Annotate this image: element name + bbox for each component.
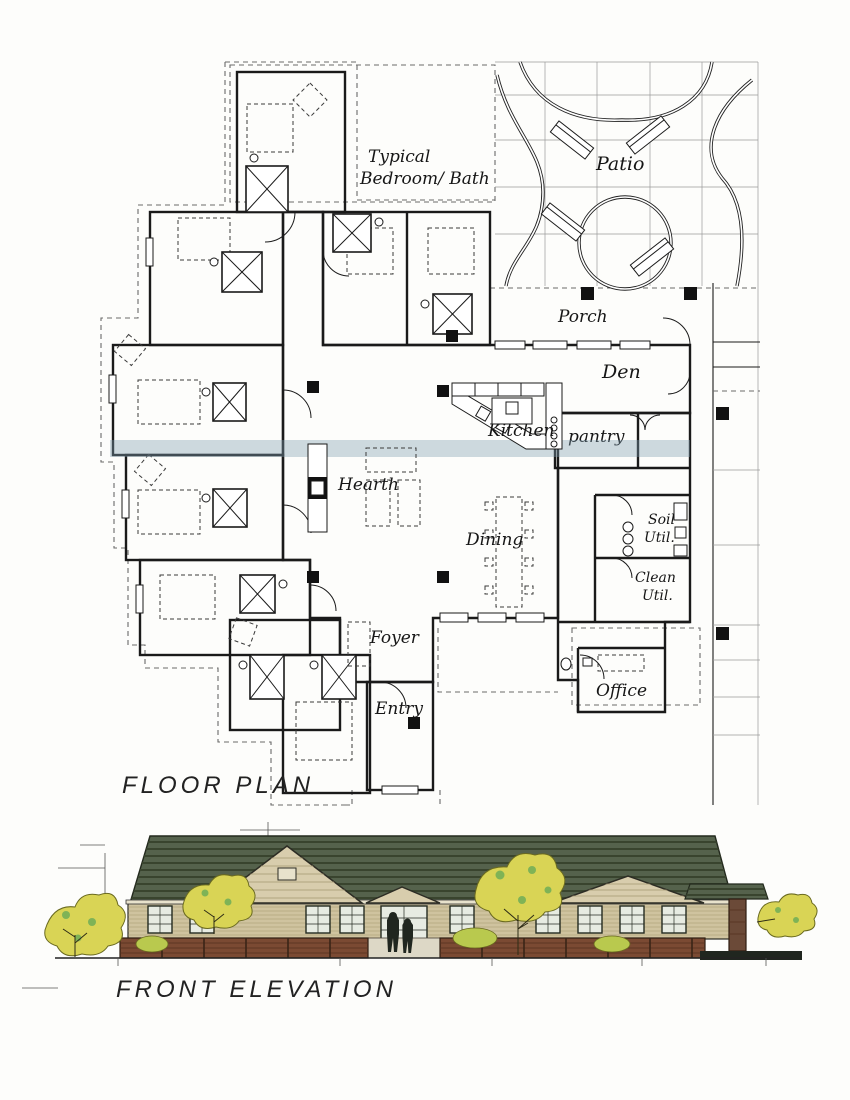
elevation-drawing: FRONT ELEVATION [22,822,817,1003]
room-label-den: Den [601,361,641,383]
bedroom-upper-left [150,212,283,345]
brick-pier [729,899,746,951]
tree-left [45,893,126,957]
kitchen-area: Kitchen [452,383,562,449]
service-wing: Soil Util. Clean Util. Office pantry [555,372,690,712]
room-label-entry: Entry [374,699,423,719]
shrub [453,928,497,948]
watercolor-band [110,440,690,457]
room-label-office: Office [596,681,647,701]
office-desk [598,655,644,671]
bedroom-left-3 [126,455,283,560]
bedroom-left-4 [140,560,310,655]
callout-label-typical-1: Typical [368,147,430,167]
room-label-foyer: Foyer [369,628,420,648]
room-label-soil-util-2: Util. [644,530,675,546]
shrub [136,936,168,952]
room-label-dining: Dining [465,530,523,550]
ground-line [55,958,790,966]
patio-planting-curves [497,62,752,289]
front-elevation-title: FRONT ELEVATION [116,976,397,1003]
dining-area: Dining [440,497,544,622]
hearth-area: Hearth [308,444,420,532]
room-label-clean-util-2: Util. [642,588,673,604]
room-label-patio: Patio [595,153,644,175]
room-label-soil-util-1: Soil [648,512,675,528]
porch-area: Porch [495,307,690,349]
service-wing-floor [555,413,690,712]
entry-area: Foyer Entry [348,622,433,794]
tree-right [757,894,817,937]
dining-table [496,497,522,607]
room-label-kitchen: Kitchen [487,421,554,441]
callout-label-typical-2: Bedroom/ Bath [359,169,490,189]
shrub [594,936,630,952]
gable-vent [278,868,296,880]
right-reference-lines [713,283,760,805]
room-label-hearth: Hearth [337,475,399,495]
scanned-drawing-page: Patio [0,0,850,1100]
floor-plan-drawing: Patio [101,62,760,808]
room-label-clean-util-1: Clean [635,570,676,586]
drawing-canvas: Patio [0,0,850,1100]
floor-plan-title: FLOOR PLAN [122,772,314,799]
room-label-porch: Porch [557,307,608,327]
